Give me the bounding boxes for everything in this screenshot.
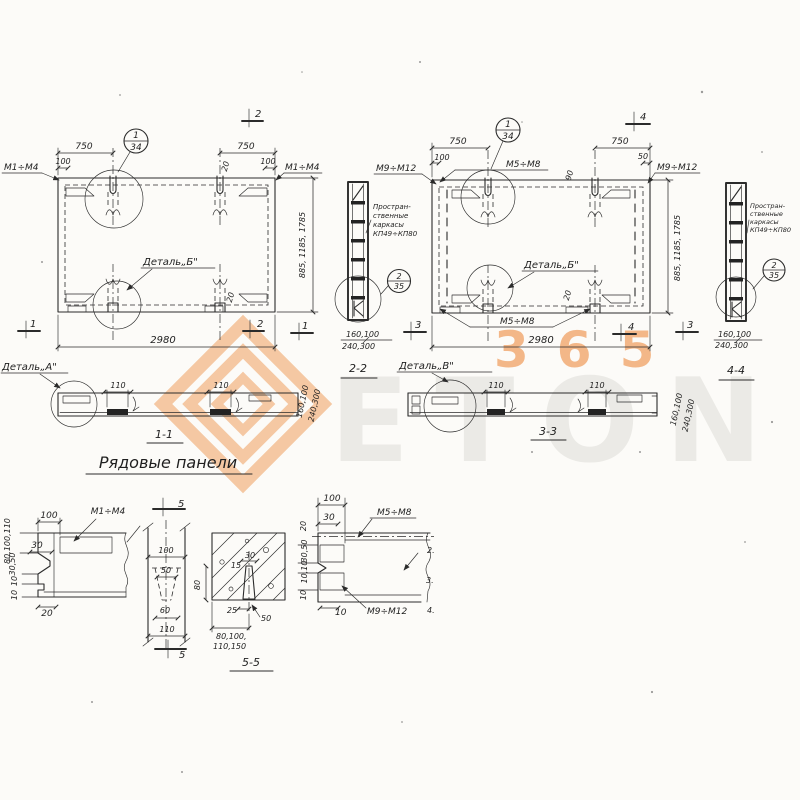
section-label-3-3: 3-3 [539, 425, 557, 438]
detail-right-profile: 100 30 20 М5÷М8 30,50 10,10 10 10 М9÷М12… [298, 494, 435, 618]
detail-v-label: Деталь„В" [398, 361, 454, 372]
ref-2: 2. [427, 546, 435, 555]
mark-m5-m8: М5÷М8 [500, 317, 535, 327]
dim-100: 100 [55, 157, 70, 166]
cage-note: каркасы [750, 218, 779, 226]
cage-note: КП49÷КП80 [750, 226, 791, 234]
balloon-num: 2 [396, 272, 401, 281]
drawing-title: Рядовые панели [99, 453, 237, 472]
lifting-anchor [481, 150, 495, 228]
dim-30: 30 [323, 513, 335, 523]
section-label-1-1: 1-1 [155, 428, 173, 441]
reinforcement-cage-right: 2 35 Простран- ственные каркасы КП49÷КП8… [714, 183, 791, 350]
dim-2980: 2980 [150, 335, 175, 346]
dim-10: 10 [335, 608, 347, 618]
dim-range: 80,100, [216, 632, 247, 641]
rot-dim: 10 [299, 590, 308, 600]
lifting-anchor [588, 150, 602, 228]
section-mark-4: 4 [628, 322, 634, 333]
section-mark-5: 5 [179, 650, 185, 661]
dim-100: 100 [260, 157, 275, 166]
mark-m1-m4: М1÷М4 [285, 163, 320, 173]
section-mark-1: 1 [302, 321, 308, 332]
ref-3: 3. [426, 576, 434, 585]
mark-m1-m4: М1÷М4 [4, 163, 39, 173]
balloon-den: 34 [502, 132, 514, 142]
section-mark-5: 5 [178, 499, 184, 510]
blueprint-page: 365 ETON 1 34 750 100 750 100 20 [0, 0, 800, 800]
rot-dim: 10 [10, 590, 19, 600]
cage-dim: 160,100 [718, 330, 751, 339]
mark-m5-m8: М5÷М8 [377, 508, 412, 518]
rot-dim: 30,50 [300, 540, 309, 563]
balloon-den: 34 [130, 143, 142, 153]
detail-b-label: Деталь„Б" [523, 260, 579, 271]
rot-dim: 20 [299, 521, 308, 531]
mark-m9-m12: М9÷М12 [367, 607, 408, 617]
dim-110: 110 [213, 381, 228, 390]
cage-note: ственные [373, 212, 408, 220]
lifting-anchor [213, 148, 227, 226]
dim-100: 100 [158, 546, 173, 555]
dim-15: 15 [231, 561, 241, 570]
section-label-4-4: 4-4 [727, 364, 745, 377]
dim-80: 80 [193, 580, 202, 590]
rot-dim: 30,50 [8, 553, 17, 576]
dim-110: 110 [488, 381, 503, 390]
dim-110: 110 [589, 381, 604, 390]
detail-left-profile: 100 М1÷М4 30 80,100,110 30,50 10 10 20 [3, 507, 140, 619]
reinforcement-cage-left: 2 35 Простран- ственные каркасы КП49÷КП8… [335, 182, 418, 351]
cage-note: ственные [750, 210, 783, 218]
dim-750: 750 [449, 137, 466, 147]
cage-dim: 160,100 [346, 330, 379, 339]
rot-dim: 10 [10, 576, 19, 586]
dim-50: 50 [638, 152, 648, 161]
section-label-5-5: 5-5 [242, 656, 260, 669]
dim-25: 25 [227, 606, 237, 615]
dim-110: 110 [110, 381, 125, 390]
dim-30: 30 [31, 541, 43, 551]
dim-100: 100 [434, 153, 449, 162]
section-mark-3: 3 [415, 320, 421, 331]
panel-plan-right: 1 34 750 100 750 50 90 20 М9÷М12 М5÷М8 М… [374, 112, 700, 351]
cage-dim: 240,300 [342, 342, 375, 351]
dim-range: 110,150 [213, 642, 246, 651]
dim-20: 20 [220, 160, 231, 172]
balloon-den: 35 [394, 282, 404, 291]
dim-20: 20 [562, 289, 573, 301]
section-5-5: 30 15 80 25 50 80,100, 110,150 5-5 [193, 533, 285, 671]
dim-2980: 2980 [528, 335, 553, 346]
dim-heights: 885, 1185, 1785 [298, 212, 307, 278]
detail-b-label: Деталь„Б" [142, 257, 198, 268]
dim-750: 750 [611, 137, 628, 147]
balloon-den: 35 [769, 271, 779, 280]
balloon-num: 2 [771, 261, 776, 270]
dim-110: 110 [159, 625, 174, 634]
section-mark-4: 4 [640, 112, 646, 123]
dim-60: 60 [160, 606, 170, 615]
dim-50: 50 [161, 566, 171, 575]
balloon-num: 1 [505, 120, 511, 130]
cage-note: Простран- [750, 202, 786, 210]
section-mark-1: 1 [30, 319, 36, 330]
cage-dim: 240,300 [715, 341, 748, 350]
mark-m9-m12: М9÷М12 [657, 163, 698, 173]
section-label-2-2: 2-2 [349, 362, 367, 375]
dim-heights: 885, 1185, 1785 [673, 215, 682, 281]
section-mark-2: 2 [257, 319, 263, 330]
detail-mid-element: 5 5 100 50 60 110 [143, 498, 190, 661]
dim-20: 20 [41, 609, 53, 619]
dim-750: 750 [75, 142, 92, 152]
lifting-anchor [481, 265, 495, 341]
dim-20: 20 [225, 291, 236, 303]
section-mark-2: 2 [255, 109, 261, 120]
dim-750: 750 [237, 142, 254, 152]
mark-m9-m12: М9÷М12 [376, 164, 417, 174]
balloon-num: 1 [133, 131, 139, 141]
dim-30: 30 [245, 551, 255, 560]
detail-a-label: Деталь„А" [1, 362, 57, 373]
detail-circle [85, 170, 143, 228]
rot-dim: 10,10 [300, 561, 309, 584]
drawing-canvas: 365 ETON 1 34 750 100 750 100 20 [0, 0, 800, 800]
cage-note: КП49÷КП80 [373, 230, 418, 238]
mark-m5-m8: М5÷М8 [506, 160, 541, 170]
watermark-brand: ETON [330, 354, 788, 489]
lifting-anchor [106, 148, 120, 226]
panel-plan-left: 1 34 750 100 750 100 20 20 М1÷М4 М1÷М4 Д… [2, 109, 322, 351]
cage-note: Простран- [373, 203, 411, 211]
dim-50: 50 [261, 614, 271, 623]
section-mark-3: 3 [687, 320, 693, 331]
cage-note: каркасы [373, 221, 404, 229]
ref-4: 4. [427, 606, 435, 615]
dim-100: 100 [40, 511, 57, 521]
mark-m1-m4: М1÷М4 [91, 507, 126, 517]
dim-100: 100 [323, 494, 340, 504]
